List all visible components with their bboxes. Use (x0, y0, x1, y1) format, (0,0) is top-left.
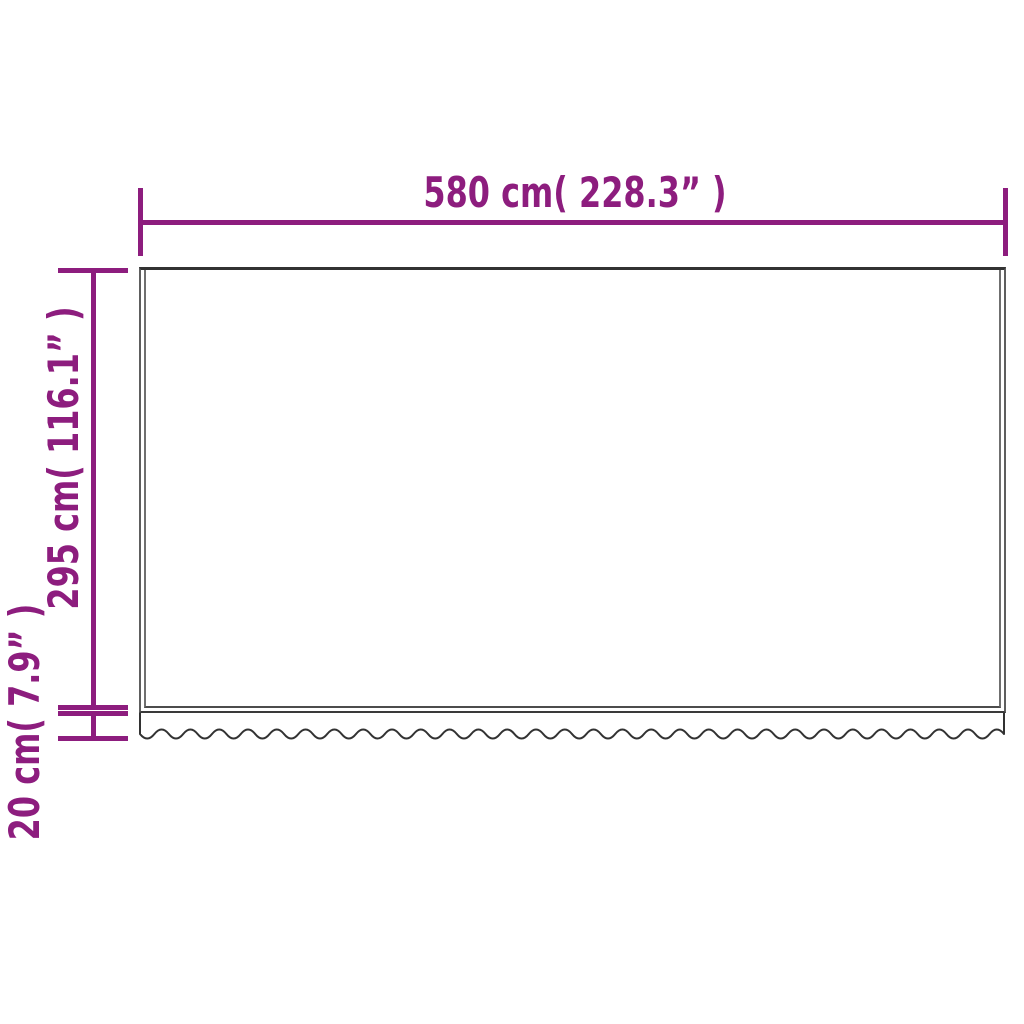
valance-dimension-bottom-tick (58, 736, 128, 741)
width-dimension-label: 580 cm( 228.3” ) (423, 172, 726, 214)
valance-wave-path (140, 713, 1004, 739)
width-dimension-right-tick (1003, 188, 1008, 256)
valance-dimension-label: 20 cm( 7.9” ) (4, 604, 46, 841)
width-dimension-line (140, 220, 1005, 225)
height-dimension-label: 295 cm( 116.1” ) (43, 306, 85, 609)
height-dimension-bottom-tick (58, 705, 128, 710)
diagram-canvas: 580 cm( 228.3” ) 295 cm( 116.1” ) 20 cm(… (0, 0, 1024, 1024)
fabric-inner-seam (144, 270, 1001, 708)
valance-wave (139, 713, 1006, 753)
width-dimension-left-tick (138, 188, 143, 256)
valance-dimension-top-tick (58, 711, 128, 716)
height-dimension-top-tick (58, 268, 128, 273)
fabric-rectangle (139, 267, 1006, 713)
height-dimension-line (91, 268, 96, 710)
